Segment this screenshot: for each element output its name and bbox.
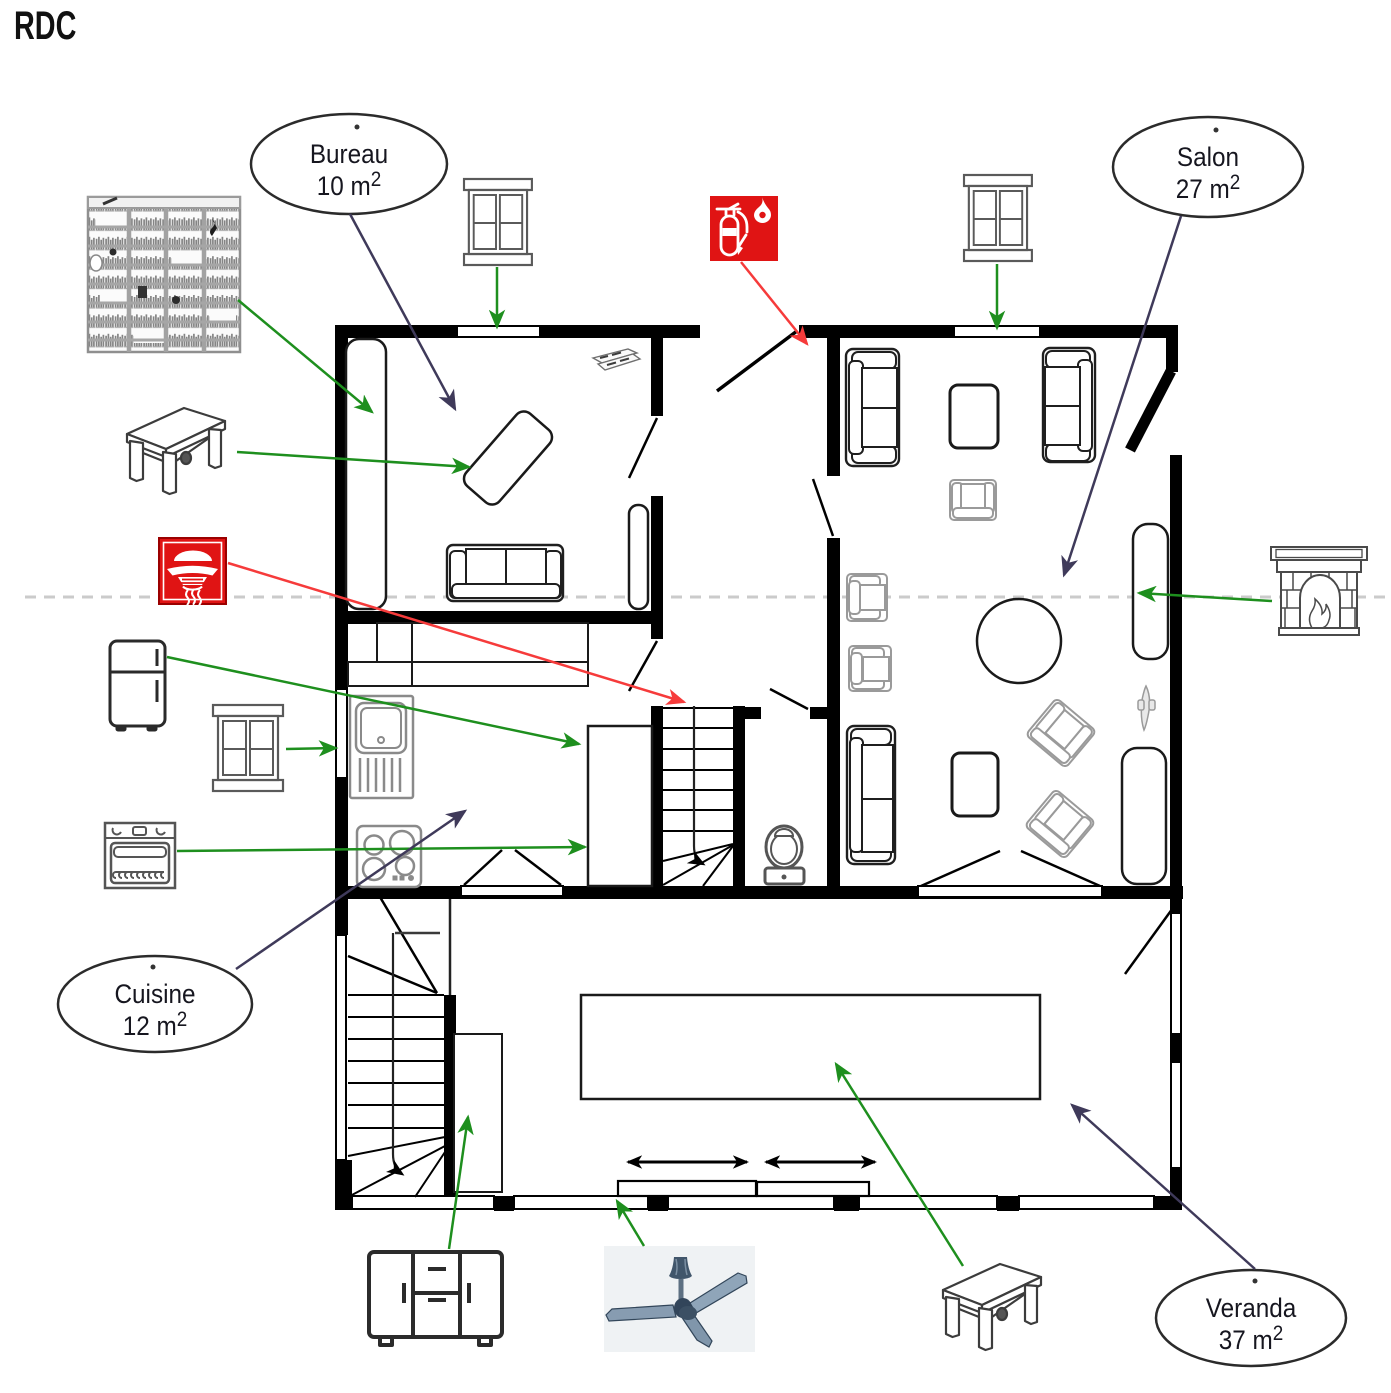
svg-text:Veranda: Veranda [1206, 1294, 1297, 1323]
svg-text:RDC: RDC [14, 3, 76, 48]
svg-text:Cuisine: Cuisine [114, 980, 195, 1009]
svg-text:Bureau: Bureau [310, 140, 388, 169]
svg-text:Salon: Salon [1177, 143, 1239, 172]
